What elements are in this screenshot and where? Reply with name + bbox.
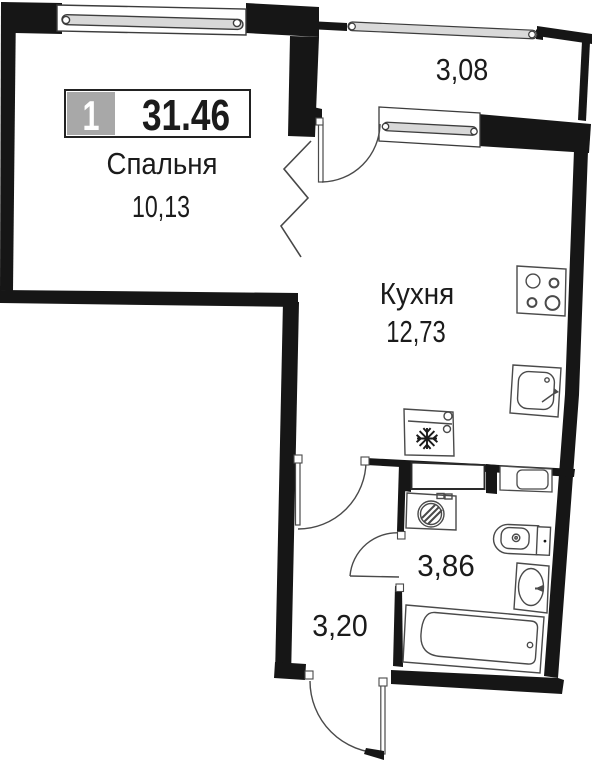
svg-text:12,73: 12,73 (386, 314, 446, 349)
svg-text:3,86: 3,86 (417, 548, 475, 583)
svg-text:Кухня: Кухня (380, 276, 455, 311)
svg-text:31.46: 31.46 (142, 91, 230, 140)
svg-text:3,20: 3,20 (312, 608, 368, 643)
svg-text:1: 1 (83, 92, 100, 139)
svg-text:Спальня: Спальня (107, 146, 218, 181)
svg-text:10,13: 10,13 (132, 189, 190, 224)
svg-text:3,08: 3,08 (436, 52, 489, 87)
